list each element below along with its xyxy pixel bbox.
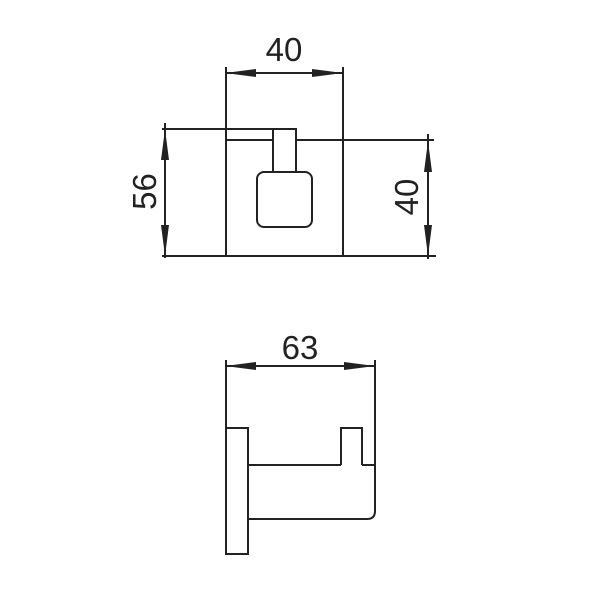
front-width-arrowhead-left bbox=[225, 69, 256, 77]
front-height-label: 56 bbox=[126, 173, 163, 210]
side-depth-label: 63 bbox=[282, 329, 319, 366]
side-depth-arrowhead-left bbox=[225, 362, 256, 370]
front-plate-height-arrowhead-bottom bbox=[424, 225, 432, 256]
front-height-arrowhead-top bbox=[161, 129, 169, 160]
front-width-dimension: 40 bbox=[225, 31, 343, 77]
front-view: 40 56 40 bbox=[126, 31, 436, 259]
front-hook-knob bbox=[257, 172, 312, 227]
front-width-label: 40 bbox=[266, 31, 303, 68]
front-plate-height-arrowhead-top bbox=[424, 141, 432, 172]
side-depth-dimension: 63 bbox=[225, 329, 375, 370]
front-height-arrowhead-bottom bbox=[161, 225, 169, 256]
side-view: 63 bbox=[225, 329, 375, 554]
side-arm-right-bottom-edge bbox=[248, 360, 375, 519]
side-depth-arrowhead-right bbox=[344, 362, 375, 370]
front-width-arrowhead-right bbox=[312, 69, 343, 77]
front-height-dimension: 56 bbox=[126, 123, 169, 258]
side-hook-tip-outline bbox=[341, 428, 362, 465]
dimension-drawing-svg: 40 56 40 bbox=[0, 0, 600, 600]
front-plate-height-label: 40 bbox=[388, 179, 425, 216]
front-plate-height-dimension: 40 bbox=[388, 134, 432, 259]
technical-drawing-canvas: 40 56 40 bbox=[0, 0, 600, 600]
side-plate-outline bbox=[226, 428, 248, 554]
